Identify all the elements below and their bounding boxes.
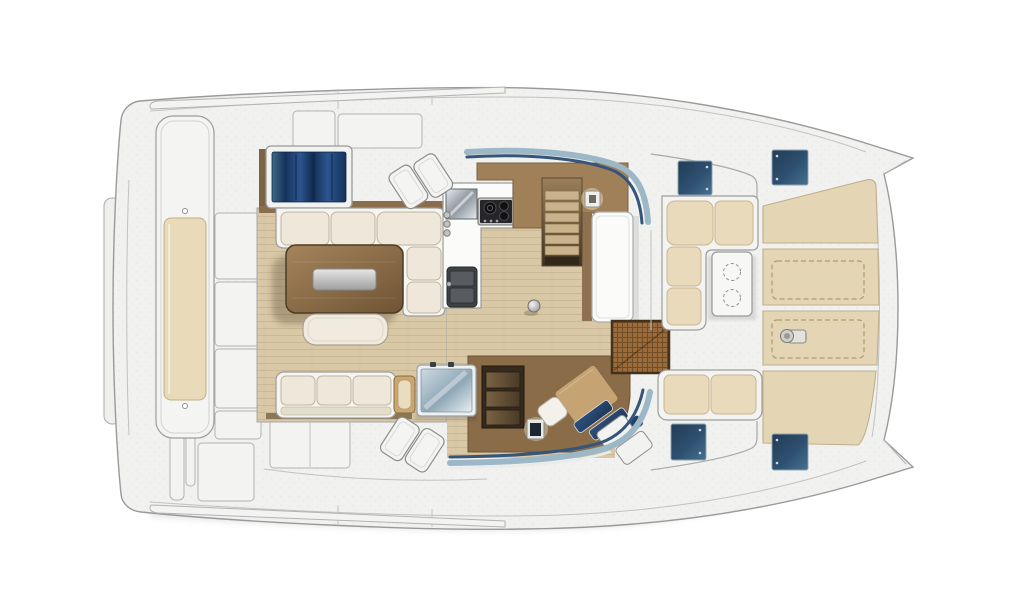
- wall-lamp-icon: [581, 188, 603, 210]
- lounge-bench-seat-edge: [281, 407, 391, 415]
- galley-sink: [447, 267, 477, 307]
- lounge-bench-cushions: [281, 376, 391, 405]
- galley-stove: [478, 198, 514, 225]
- stern-bench-cushion: [164, 218, 206, 400]
- icebox: [415, 362, 477, 420]
- faucet-icon: [447, 282, 452, 287]
- deck-plan-svg: [0, 0, 1024, 614]
- cabinet-fridge: [592, 212, 639, 322]
- bench-hinge-icon: [183, 404, 188, 409]
- burner-icon: [484, 202, 496, 214]
- cockpit-bench: [658, 370, 762, 420]
- side-table-inset: [398, 380, 411, 409]
- deck-hatch: [772, 150, 808, 185]
- ottoman: [303, 314, 388, 345]
- burner-icon: [500, 212, 509, 221]
- foredeck-sunpads: [763, 180, 879, 445]
- bench-hinge-icon: [183, 209, 188, 214]
- deck-hatch: [678, 161, 712, 195]
- cabinetry-brown-side: [582, 213, 592, 321]
- sunpad-panel: [763, 249, 879, 305]
- burner-icon: [500, 202, 509, 211]
- windlass-icon: [781, 330, 807, 344]
- stern-window-glass: [272, 152, 346, 202]
- stairs-starboard: [542, 178, 582, 266]
- galley-knobs: [444, 212, 450, 236]
- bookshelf: [482, 366, 524, 428]
- stern-bench: [156, 116, 214, 438]
- deck-hatch: [772, 434, 808, 470]
- stern-window: [266, 146, 352, 208]
- cockpit-table: [708, 252, 756, 320]
- deck-hatch: [671, 424, 706, 460]
- deck-plan-canvas: [0, 0, 1024, 614]
- table-tray: [313, 269, 376, 290]
- entry-mat: [612, 321, 669, 373]
- icebox-hinge-icon: [448, 362, 454, 367]
- icebox-hinge-icon: [430, 362, 436, 367]
